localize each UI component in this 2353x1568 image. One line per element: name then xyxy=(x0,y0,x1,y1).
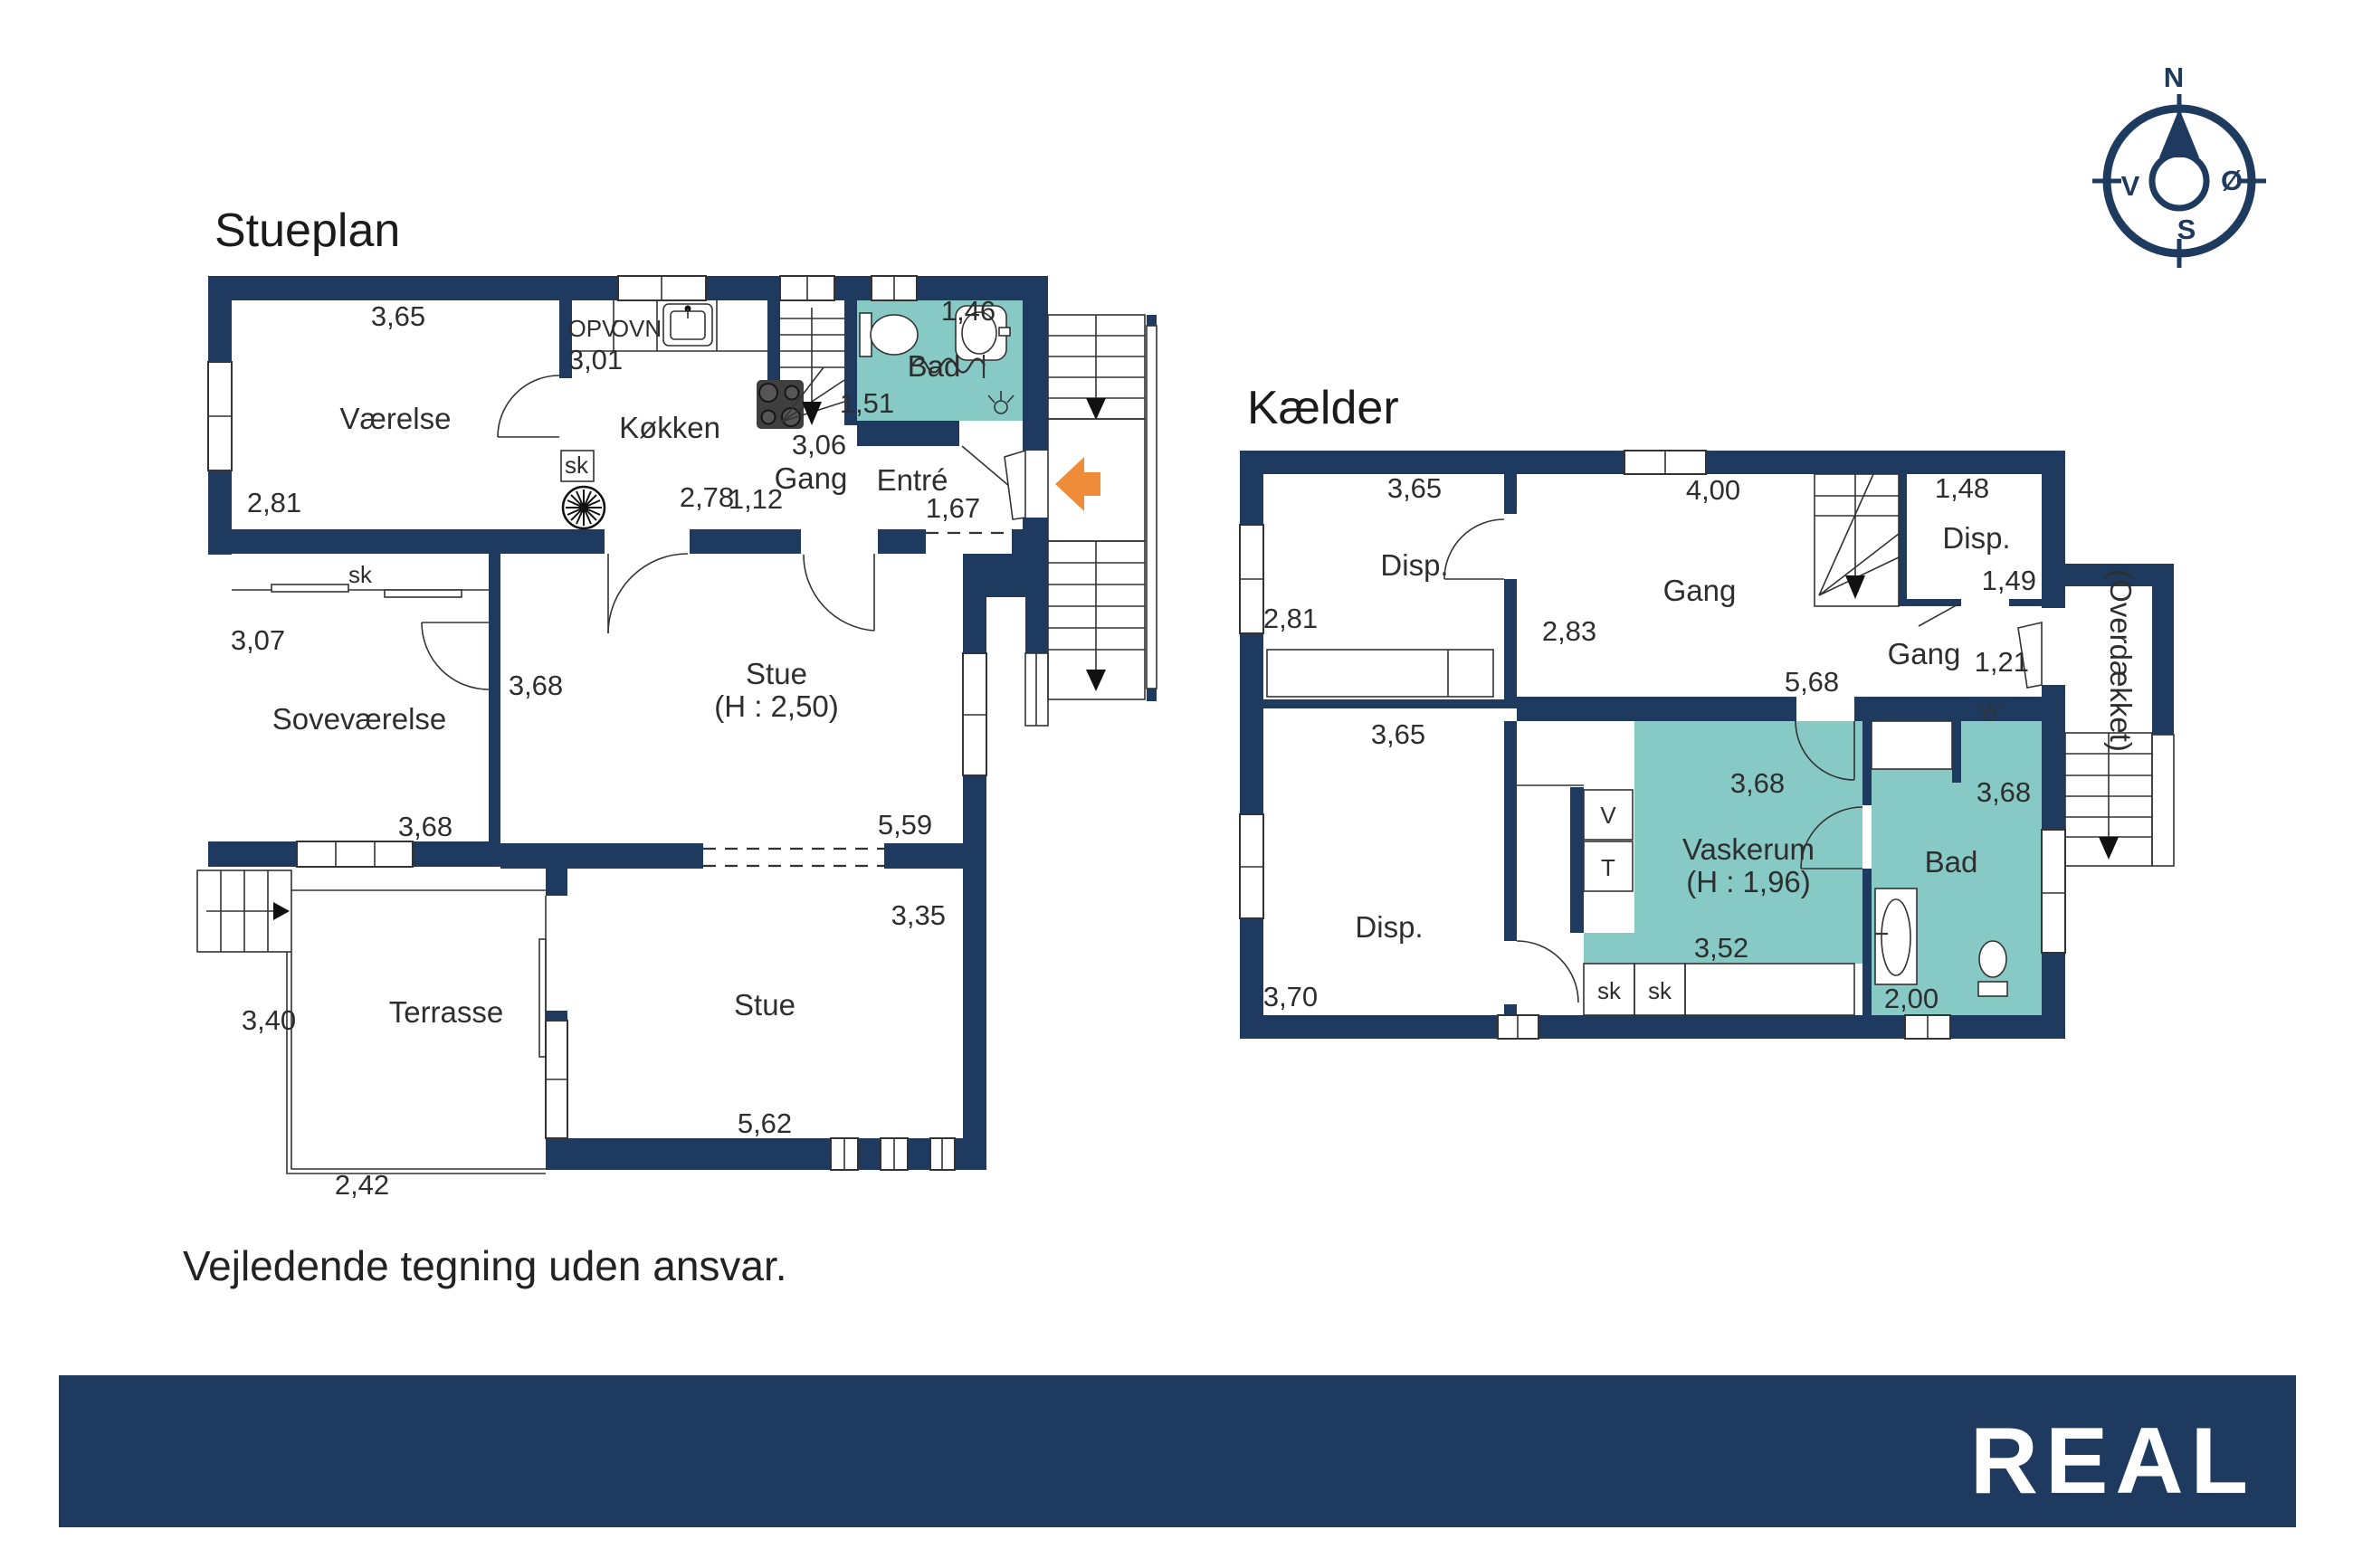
stair-down-arrow xyxy=(802,402,822,425)
compass-icon: N Ø S V xyxy=(2092,62,2266,268)
dim-entre-w: 1,67 xyxy=(926,492,980,524)
room-label-gang: Gang xyxy=(775,461,848,495)
dim-terrasse-w: 2,42 xyxy=(335,1169,389,1201)
label-sk-closet: sk xyxy=(348,561,373,588)
dim-disp-nw-w: 3,65 xyxy=(1387,472,1442,504)
room-label-vaerelse: Værelse xyxy=(340,402,452,435)
room-label-vaskerum-height: (H : 1,96) xyxy=(1686,865,1811,898)
dim-terrasse-h: 3,40 xyxy=(242,1004,296,1036)
banner-background xyxy=(59,1375,2296,1527)
dim-stue-upper-w: 3,68 xyxy=(509,670,563,701)
room-label-disp-sw: Disp. xyxy=(1355,910,1423,944)
dim-vaskerum-l: 3,52 xyxy=(1694,932,1748,964)
dim-stue-lower-h: 3,35 xyxy=(891,899,946,931)
entrance-arrow-icon xyxy=(1055,457,1100,511)
dim-gang-w: 4,00 xyxy=(1686,474,1740,506)
dim-koekken-d2: 1,12 xyxy=(729,483,783,515)
room-label-stue-upper-height: (H : 2,50) xyxy=(714,689,839,723)
overdaekket-stairs xyxy=(2065,733,2174,866)
room-label-stue-upper: Stue xyxy=(746,657,807,690)
compass-needle xyxy=(2159,109,2199,157)
dim-gang-w: 3,06 xyxy=(792,429,846,461)
brand-banner: REAL xyxy=(59,1375,2296,1527)
dim-bad-w: 1,46 xyxy=(941,295,995,327)
dim-stue-lower-w: 5,62 xyxy=(738,1107,792,1139)
label-ovn: OVN xyxy=(611,315,662,342)
room-label-vaskerum: Vaskerum xyxy=(1682,832,1815,866)
floor-plan-page: Stueplan xyxy=(0,0,2353,1568)
dim-gang-east-w: 1,21 xyxy=(1975,646,2029,678)
entrance-door-leaf xyxy=(1005,451,1025,519)
dim-sovevaerelse-h: 3,07 xyxy=(231,624,285,656)
compass-w: V xyxy=(2121,170,2140,202)
bath-niche xyxy=(1872,721,1952,769)
closet-box xyxy=(1685,964,1854,1015)
real-logo: REAL xyxy=(1970,1409,2255,1514)
label-sk2: sk xyxy=(1648,977,1672,1004)
dim-gang-h: 2,83 xyxy=(1542,615,1596,647)
compass-e: Ø xyxy=(2221,165,2243,196)
room-label-disp-nw: Disp. xyxy=(1380,548,1448,582)
label-dryer-t: T xyxy=(1601,854,1615,881)
dim-vaskerum-w: 3,68 xyxy=(1730,767,1785,799)
room-label-koekken: Køkken xyxy=(619,411,720,444)
dim-disp-ne-w: 1,48 xyxy=(1935,472,1989,504)
dim-bad-w: 3,68 xyxy=(1977,776,2031,808)
room-label-bad: Bad xyxy=(908,349,961,383)
terrasse-arrow xyxy=(273,902,290,920)
kaelder-title: Kælder xyxy=(1247,382,1399,434)
dim-koekken-w: 3,01 xyxy=(568,344,623,375)
kaelder-floor-plan: Kælder xyxy=(1240,382,2174,1039)
dim-vaerelse-w: 3,65 xyxy=(371,300,425,332)
label-sk-kitchen: sk xyxy=(565,451,589,479)
dim-disp-nw-h: 2,81 xyxy=(1263,603,1318,634)
dim-bad-l: 2,00 xyxy=(1884,983,1939,1014)
room-label-disp-ne: Disp. xyxy=(1942,521,2010,555)
label-washer-v: V xyxy=(1600,802,1616,829)
dim-stue-upper-l: 5,59 xyxy=(878,809,932,841)
room-label-gang-main: Gang xyxy=(1663,574,1737,607)
compass-n: N xyxy=(2164,62,2184,93)
label-sk1: sk xyxy=(1597,977,1622,1004)
sink-icon xyxy=(663,304,712,346)
bathtub-icon xyxy=(1875,889,1917,984)
dim-koekken-d1: 2,78 xyxy=(680,481,734,513)
dim-vaerelse-h: 2,81 xyxy=(247,487,301,518)
room-label-stue-lower: Stue xyxy=(734,988,795,1022)
room-label-sovevaerelse: Soveværelse xyxy=(272,702,447,736)
dim-disp-ne-h: 1,49 xyxy=(1982,565,2036,596)
dim-bad-h: 1,51 xyxy=(840,387,894,419)
label-overdaekket: (Overdækket) xyxy=(2104,569,2138,752)
shelf-outline xyxy=(1267,650,1493,697)
dim-disp-sw-h: 3,70 xyxy=(1263,981,1318,1012)
fan-icon xyxy=(563,487,605,528)
stair-down-arrow xyxy=(1845,575,1865,599)
toilet-icon xyxy=(1978,941,2007,996)
stueplan-title: Stueplan xyxy=(214,204,400,257)
room-label-terrasse: Terrasse xyxy=(389,995,504,1029)
room-label-bad: Bad xyxy=(1925,845,1978,879)
stueplan-floor-plan: Stueplan xyxy=(197,204,1157,1201)
dim-disp-sw-w: 3,65 xyxy=(1371,718,1425,750)
dim-sovevaerelse-w: 3,68 xyxy=(398,811,452,842)
dim-gang-l: 5,68 xyxy=(1785,666,1839,698)
disclaimer-text: Vejledende tegning uden ansvar. xyxy=(183,1242,787,1289)
room-label-gang-east: Gang xyxy=(1888,637,1961,670)
basement-staircase xyxy=(1815,474,1899,606)
stove-icon xyxy=(757,380,804,429)
compass-s: S xyxy=(2177,214,2196,245)
